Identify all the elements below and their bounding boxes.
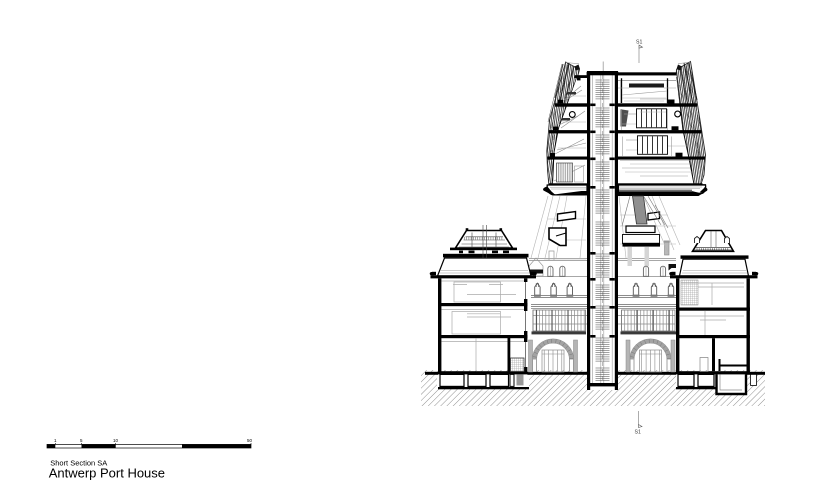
svg-text:S1: S1	[636, 40, 642, 46]
svg-text:Antwerp Port House: Antwerp Port House	[49, 466, 165, 481]
svg-text:S1: S1	[635, 430, 641, 436]
svg-text:50: 50	[247, 438, 253, 443]
svg-text:10: 10	[113, 438, 119, 443]
